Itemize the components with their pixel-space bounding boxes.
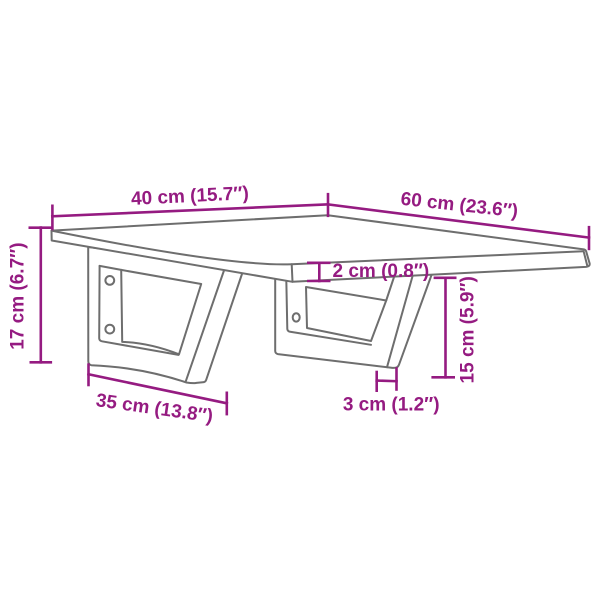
svg-text:2 cm (0.8″): 2 cm (0.8″) [333,261,430,282]
svg-text:3 cm (1.2″): 3 cm (1.2″) [343,395,440,416]
svg-text:15 cm (5.9″): 15 cm (5.9″) [458,276,479,383]
svg-text:17 cm (6.7″): 17 cm (6.7″) [8,242,29,349]
